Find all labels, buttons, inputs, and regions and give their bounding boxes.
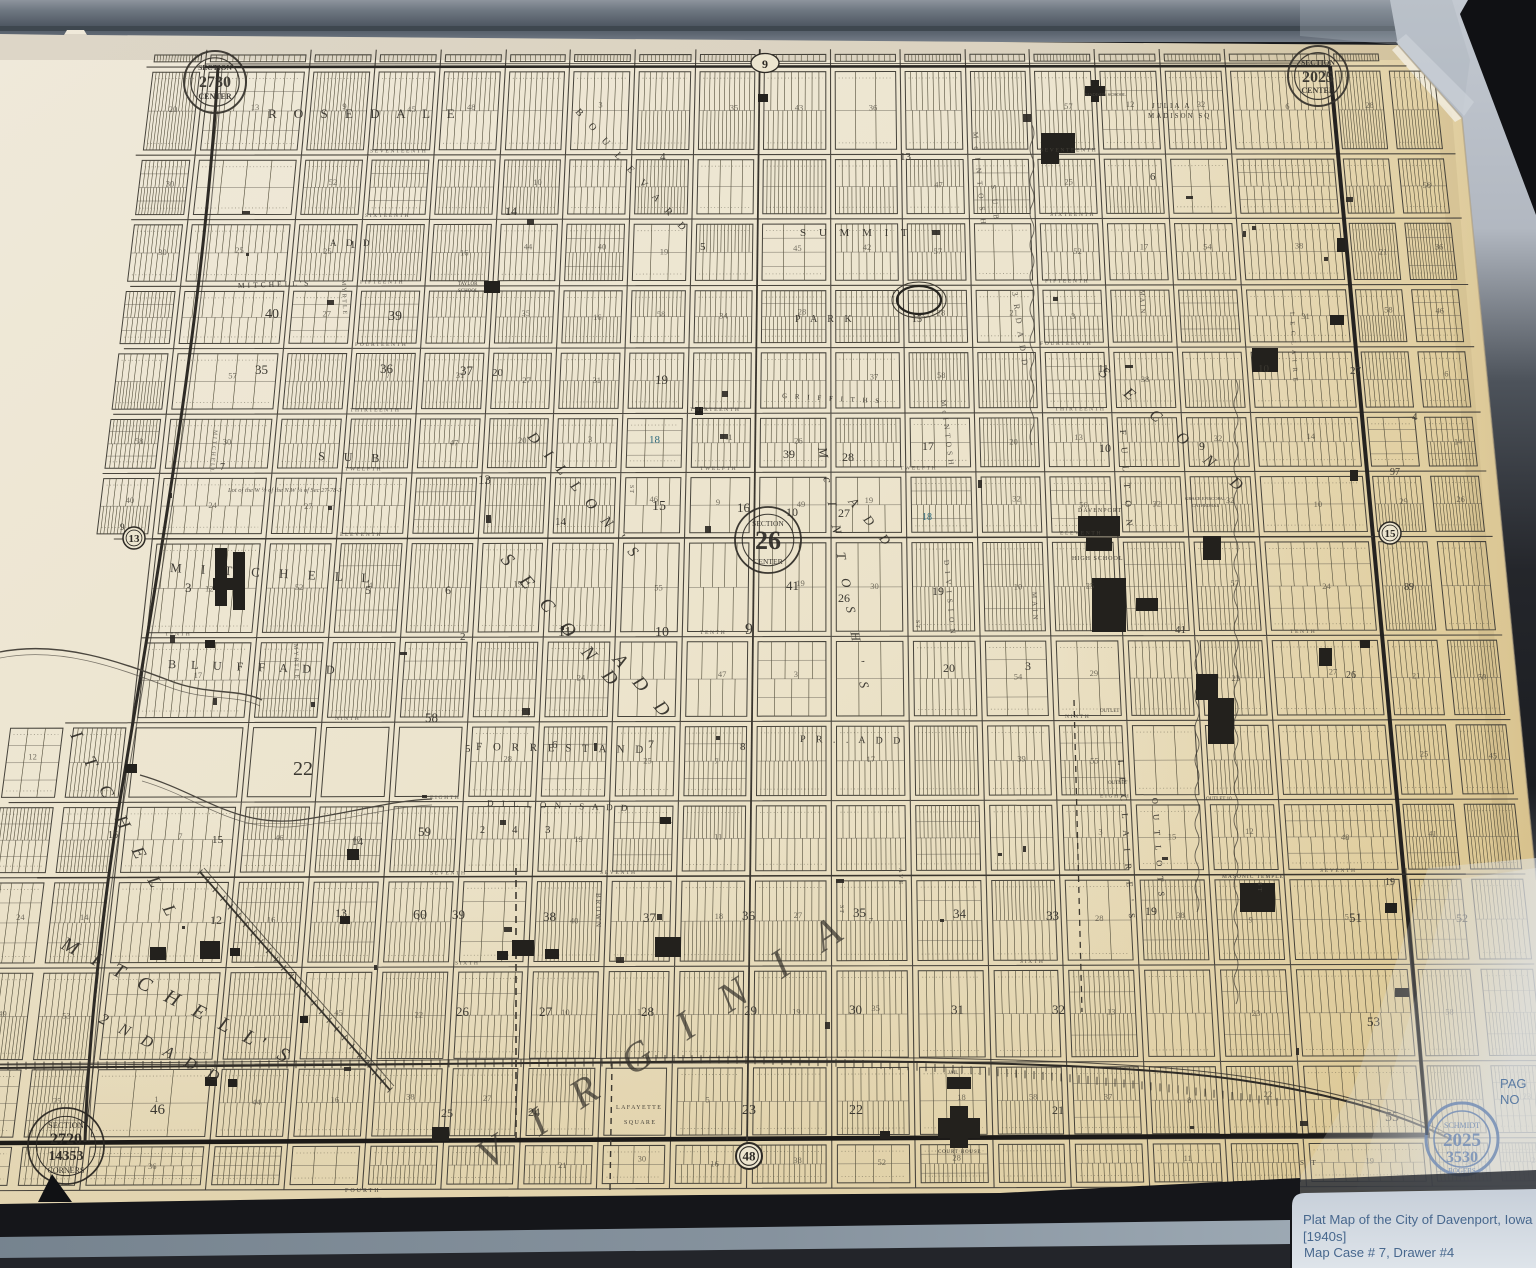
svg-text:36: 36 (148, 1161, 157, 1171)
svg-text:26: 26 (1456, 494, 1465, 504)
svg-text:44: 44 (252, 1097, 261, 1107)
svg-text:7: 7 (178, 831, 182, 841)
svg-text:27: 27 (539, 1004, 553, 1019)
svg-text:OUTLET 10: OUTLET 10 (1206, 797, 1232, 802)
svg-text:89: 89 (1404, 582, 1414, 593)
svg-text:38: 38 (1141, 374, 1150, 384)
svg-text:34: 34 (953, 906, 967, 921)
svg-text:15: 15 (1385, 528, 1397, 540)
svg-text:20: 20 (943, 661, 955, 675)
svg-text:27: 27 (323, 308, 332, 318)
svg-text:52: 52 (878, 1157, 887, 1167)
svg-text:21: 21 (558, 1160, 567, 1170)
svg-text:5: 5 (706, 1095, 710, 1105)
svg-text:15: 15 (912, 314, 922, 325)
svg-text:SEVENTH: SEVENTH (430, 870, 467, 876)
svg-text:TAYLOR: TAYLOR (458, 282, 478, 287)
svg-text:7: 7 (220, 462, 225, 473)
svg-text:15: 15 (1168, 831, 1177, 841)
svg-text:33: 33 (1046, 908, 1059, 923)
svg-text:45: 45 (1489, 750, 1498, 760)
svg-text:9: 9 (745, 621, 753, 638)
svg-text:46: 46 (150, 1102, 166, 1118)
svg-text:12: 12 (205, 583, 214, 593)
svg-text:26: 26 (456, 1004, 470, 1019)
svg-text:JAIL: JAIL (948, 1071, 958, 1076)
svg-text:S U B: S U B (318, 449, 388, 465)
svg-text:54: 54 (1203, 242, 1212, 252)
svg-text:26: 26 (794, 436, 803, 446)
svg-text:29: 29 (1399, 496, 1408, 506)
svg-text:JULIA A: JULIA A (1152, 102, 1191, 110)
svg-text:51: 51 (1349, 910, 1362, 925)
svg-text:30: 30 (158, 247, 167, 257)
svg-text:23: 23 (1252, 1008, 1261, 1018)
svg-text:38: 38 (406, 1091, 415, 1101)
svg-text:FOURTEENTH: FOURTEENTH (1040, 341, 1092, 347)
svg-text:ELEVENTH: ELEVENTH (340, 532, 382, 538)
svg-text:47: 47 (718, 669, 727, 679)
svg-text:SEVENTEENTH: SEVENTEENTH (370, 149, 427, 155)
svg-text:FIFTEENTH: FIFTEENTH (1045, 279, 1089, 285)
svg-text:12: 12 (1126, 99, 1135, 109)
svg-text:18: 18 (957, 1092, 966, 1102)
svg-text:10: 10 (561, 1007, 570, 1017)
svg-text:LAFAYETTE: LAFAYETTE (616, 1105, 662, 1111)
svg-text:SCHOOL: SCHOOL (458, 289, 478, 294)
svg-text:10: 10 (1099, 441, 1111, 455)
svg-text:16: 16 (108, 830, 118, 841)
svg-text:55: 55 (1090, 755, 1099, 765)
svg-text:58: 58 (657, 309, 666, 319)
svg-text:35: 35 (730, 103, 739, 113)
svg-text:27: 27 (1350, 365, 1362, 377)
svg-text:6: 6 (1444, 368, 1448, 378)
svg-text:39: 39 (452, 907, 465, 922)
svg-text:40: 40 (570, 916, 579, 926)
svg-text:Map Case # 7, Drawer #4: Map Case # 7, Drawer #4 (1304, 1245, 1454, 1260)
svg-text:FOURTH: FOURTH (345, 1188, 381, 1194)
svg-text:TWELFTH: TWELFTH (700, 466, 737, 472)
svg-text:SEVENTH: SEVENTH (600, 870, 637, 876)
svg-text:13: 13 (900, 151, 912, 163)
svg-text:21: 21 (1412, 671, 1421, 681)
svg-text:36: 36 (869, 102, 878, 112)
svg-text:FIFTEENTH: FIFTEENTH (360, 280, 404, 286)
svg-text:TWELFTH: TWELFTH (900, 466, 937, 472)
svg-text:58: 58 (1029, 1092, 1038, 1102)
svg-text:MAIN: MAIN (1138, 290, 1146, 316)
svg-text:COURT HOUSE: COURT HOUSE (938, 1150, 981, 1155)
svg-text:22: 22 (415, 1009, 424, 1019)
svg-text:23: 23 (742, 1103, 756, 1118)
svg-text:OUTLET: OUTLET (1100, 709, 1119, 714)
svg-text:19: 19 (796, 578, 805, 588)
svg-text:16: 16 (267, 914, 276, 924)
svg-text:15: 15 (212, 834, 224, 846)
svg-text:10: 10 (655, 625, 669, 640)
svg-text:10: 10 (1314, 499, 1323, 509)
svg-text:46: 46 (1436, 306, 1445, 316)
svg-text:Lot of the W ½ of the N.W ¼ of: Lot of the W ½ of the N.W ¼ of Sec 27-78… (227, 487, 342, 494)
svg-text:24: 24 (16, 912, 25, 922)
svg-text:58: 58 (937, 370, 946, 380)
svg-text:ST: ST (1256, 882, 1263, 894)
svg-text:58: 58 (1423, 180, 1432, 190)
svg-text:31: 31 (593, 375, 602, 385)
svg-text:59: 59 (418, 824, 431, 839)
svg-text:25: 25 (1086, 581, 1095, 591)
svg-text:13: 13 (1074, 432, 1083, 442)
svg-text:20: 20 (169, 104, 178, 114)
svg-text:3530: 3530 (1446, 1149, 1478, 1166)
svg-text:ST: ST (628, 485, 634, 494)
svg-text:30: 30 (849, 1002, 862, 1017)
svg-text:24: 24 (208, 500, 217, 510)
svg-text:16: 16 (593, 312, 602, 322)
svg-text:18: 18 (649, 434, 661, 446)
svg-text:TENTH: TENTH (700, 630, 726, 636)
svg-text:3: 3 (545, 824, 551, 836)
svg-text:52: 52 (295, 582, 304, 592)
svg-text:2025: 2025 (1302, 69, 1334, 86)
svg-text:SIXTEENTH: SIXTEENTH (1050, 212, 1095, 218)
svg-text:18: 18 (922, 512, 932, 523)
svg-text:SCHMIDT: SCHMIDT (1444, 1121, 1480, 1130)
svg-text:14: 14 (555, 516, 567, 528)
svg-text:4: 4 (660, 151, 666, 163)
svg-text:3: 3 (598, 100, 602, 110)
svg-text:1: 1 (637, 1007, 641, 1017)
svg-text:21: 21 (1052, 1103, 1064, 1117)
svg-text:27: 27 (483, 1093, 492, 1103)
svg-text:19: 19 (1385, 877, 1395, 888)
svg-text:THIRTEENTH: THIRTEENTH (690, 407, 740, 413)
svg-text:14: 14 (505, 204, 517, 218)
svg-text:9: 9 (716, 497, 720, 507)
svg-text:17: 17 (867, 754, 876, 764)
svg-text:22: 22 (293, 758, 313, 780)
svg-text:32: 32 (1052, 1002, 1065, 1017)
svg-text:55: 55 (654, 582, 663, 592)
svg-text:P A R K: P A R K (795, 314, 856, 325)
svg-text:27: 27 (1329, 667, 1338, 677)
svg-text:32: 32 (1214, 433, 1223, 443)
svg-text:40: 40 (265, 307, 279, 322)
svg-text:52: 52 (1073, 246, 1082, 256)
svg-text:6: 6 (445, 583, 451, 597)
svg-text:57: 57 (1064, 101, 1073, 111)
svg-text:CENTER: CENTER (1301, 86, 1335, 95)
svg-text:37: 37 (870, 371, 879, 381)
svg-text:11: 11 (714, 832, 722, 842)
svg-text:38: 38 (543, 909, 556, 924)
svg-text:12: 12 (28, 752, 37, 762)
svg-text:50: 50 (1478, 671, 1487, 681)
svg-text:6: 6 (1285, 101, 1289, 111)
svg-text:28: 28 (504, 754, 513, 764)
svg-text:P R . . A D D: P R . . A D D (800, 734, 905, 747)
svg-text:16: 16 (460, 248, 469, 258)
svg-text:MADISON SQ: MADISON SQ (1148, 112, 1211, 120)
svg-text:5: 5 (700, 241, 706, 253)
svg-text:37: 37 (643, 910, 657, 925)
svg-text:24: 24 (577, 672, 586, 682)
svg-text:14: 14 (1454, 437, 1463, 447)
svg-text:17: 17 (417, 912, 426, 922)
svg-text:43: 43 (795, 103, 804, 113)
svg-text:19: 19 (574, 834, 583, 844)
svg-text:40: 40 (598, 241, 607, 251)
svg-text:54: 54 (1014, 671, 1023, 681)
svg-text:19: 19 (932, 584, 944, 598)
svg-text:31: 31 (951, 1002, 964, 1017)
svg-text:MADISON SCHOOL: MADISON SCHOOL (1085, 92, 1126, 97)
svg-text:14: 14 (80, 912, 89, 922)
svg-text:Plat Map of the City of Davenp: Plat Map of the City of Davenport, Iowa (1303, 1212, 1533, 1227)
svg-text:5: 5 (465, 743, 471, 755)
svg-text:NO: NO (1500, 1092, 1520, 1107)
svg-text:57: 57 (228, 370, 237, 380)
svg-text:SQUARE: SQUARE (624, 1120, 656, 1126)
svg-text:SIXTH: SIXTH (1020, 959, 1044, 965)
svg-text:27: 27 (522, 375, 531, 385)
svg-text:97: 97 (1390, 467, 1400, 478)
svg-text:3: 3 (1025, 659, 1031, 673)
svg-text:47: 47 (450, 437, 459, 447)
svg-text:32: 32 (1197, 99, 1206, 109)
svg-text:31: 31 (456, 370, 465, 380)
svg-text:41: 41 (1175, 624, 1186, 636)
svg-text:29: 29 (1090, 668, 1099, 678)
svg-text:53: 53 (62, 1010, 71, 1020)
svg-text:46: 46 (275, 833, 284, 843)
svg-text:A D D: A D D (330, 238, 374, 248)
svg-text:19: 19 (792, 1006, 801, 1016)
svg-text:21: 21 (1379, 246, 1388, 256)
svg-text:13: 13 (251, 102, 259, 112)
svg-text:47: 47 (934, 180, 943, 190)
svg-text:19: 19 (655, 372, 668, 387)
svg-text:49: 49 (0, 1009, 7, 1019)
svg-text:25: 25 (441, 1106, 453, 1120)
svg-text:22: 22 (1264, 1089, 1273, 1099)
svg-text:ST: ST (914, 620, 920, 629)
svg-text:2: 2 (480, 825, 485, 836)
svg-text:28: 28 (1095, 913, 1104, 923)
svg-text:TENTH: TENTH (165, 631, 191, 637)
svg-text:28: 28 (641, 1004, 654, 1019)
svg-text:25: 25 (1420, 749, 1429, 759)
svg-text:MAIN: MAIN (1030, 592, 1040, 623)
svg-text:7: 7 (714, 756, 718, 766)
svg-text:MYRTLE: MYRTLE (340, 280, 347, 316)
svg-text:41: 41 (1428, 829, 1437, 839)
svg-text:CENTER: CENTER (198, 92, 232, 101)
svg-text:THIRTEENTH: THIRTEENTH (350, 407, 400, 413)
svg-text:8: 8 (1187, 1095, 1191, 1105)
svg-text:19: 19 (660, 246, 669, 256)
svg-text:27: 27 (794, 910, 803, 920)
svg-text:R O S E D A L E: R O S E D A L E (268, 106, 462, 121)
svg-text:EIGHTH: EIGHTH (430, 795, 460, 801)
svg-text:17: 17 (1140, 242, 1149, 252)
svg-text:13: 13 (1107, 1006, 1116, 1016)
svg-text:17: 17 (922, 439, 934, 453)
svg-text:30: 30 (638, 1154, 647, 1164)
svg-text:SECTION: SECTION (198, 63, 232, 72)
svg-text:52: 52 (329, 177, 338, 187)
svg-text:S U M M I T: S U M M I T (800, 227, 913, 239)
svg-text:39: 39 (388, 309, 402, 324)
svg-text:9: 9 (762, 57, 768, 71)
svg-text:SECTION: SECTION (1301, 58, 1335, 67)
svg-text:38: 38 (1176, 910, 1185, 920)
svg-text:SEVENTH: SEVENTH (1320, 868, 1357, 874)
svg-text:16: 16 (710, 1158, 719, 1168)
svg-text:48: 48 (467, 102, 476, 112)
svg-text:3: 3 (794, 669, 798, 679)
svg-text:NINTH: NINTH (335, 716, 360, 722)
svg-text:3: 3 (1098, 827, 1102, 837)
svg-text:11: 11 (1184, 1153, 1192, 1163)
svg-text:12: 12 (1245, 826, 1254, 836)
svg-text:41: 41 (724, 432, 733, 442)
svg-text:46: 46 (650, 494, 659, 504)
svg-text:DAVENPORT: DAVENPORT (1078, 508, 1122, 514)
svg-text:SECTION: SECTION (48, 1120, 84, 1130)
svg-text:9: 9 (120, 522, 125, 532)
svg-text:7: 7 (648, 737, 654, 751)
svg-text:13: 13 (129, 533, 141, 545)
svg-text:SEVENTEENTH: SEVENTEENTH (1040, 148, 1097, 154)
svg-text:3: 3 (1071, 311, 1075, 321)
svg-text:48: 48 (743, 1149, 757, 1164)
svg-text:THIRTEENTH: THIRTEENTH (1055, 406, 1105, 412)
svg-text:20: 20 (492, 367, 504, 379)
svg-text:28: 28 (842, 450, 854, 464)
svg-text:36: 36 (1435, 241, 1444, 251)
svg-text:26: 26 (755, 526, 781, 555)
svg-text:14: 14 (1307, 431, 1316, 441)
svg-text:35: 35 (255, 362, 268, 377)
svg-text:2720: 2720 (50, 1131, 82, 1148)
svg-text:GRACE EPISCOPAL: GRACE EPISCOPAL (1185, 496, 1226, 501)
svg-text:ELEVENTH: ELEVENTH (1060, 531, 1102, 537)
svg-text:TWELFTH: TWELFTH (345, 467, 382, 473)
svg-text:8: 8 (740, 741, 746, 753)
svg-text:6: 6 (1150, 171, 1156, 183)
svg-text:27: 27 (304, 501, 313, 511)
svg-text:34: 34 (719, 311, 728, 321)
svg-text:FOURTEENTH: FOURTEENTH (355, 342, 407, 348)
svg-text:TENTH: TENTH (1290, 629, 1316, 635)
svg-text:30: 30 (223, 437, 232, 447)
svg-text:S T: S T (1300, 1159, 1319, 1167)
svg-text:25: 25 (235, 245, 244, 255)
svg-text:10: 10 (1258, 363, 1270, 375)
svg-text:45: 45 (793, 243, 802, 253)
svg-text:SIXTEENTH: SIXTEENTH (365, 213, 410, 219)
svg-text:3: 3 (588, 434, 592, 444)
svg-text:NINTH: NINTH (1065, 714, 1090, 720)
svg-text:MASONIC TEMPLE: MASONIC TEMPLE (1222, 874, 1284, 880)
svg-text:26: 26 (1346, 670, 1356, 681)
svg-text:39: 39 (783, 447, 795, 461)
svg-text:4: 4 (512, 824, 518, 836)
svg-text:25: 25 (53, 1095, 62, 1105)
svg-text:44: 44 (524, 242, 533, 252)
svg-text:58: 58 (135, 436, 144, 446)
svg-text:24: 24 (1322, 581, 1331, 591)
svg-text:7: 7 (386, 370, 390, 380)
svg-text:2025: 2025 (1443, 1130, 1481, 1151)
svg-text:19: 19 (1145, 904, 1157, 918)
svg-text:35: 35 (871, 1003, 880, 1013)
svg-text:28: 28 (1365, 100, 1374, 110)
svg-text:57: 57 (934, 246, 943, 256)
svg-text:13: 13 (478, 472, 491, 487)
svg-text:CORNERS: CORNERS (48, 1166, 85, 1175)
svg-text:49: 49 (797, 499, 806, 509)
svg-text:28: 28 (937, 307, 946, 317)
svg-text:14353: 14353 (49, 1149, 84, 1164)
svg-text:4: 4 (1412, 411, 1418, 423)
svg-text:HIGH SCHOOL: HIGH SCHOOL (1072, 556, 1124, 562)
svg-text:32: 32 (1153, 498, 1162, 508)
svg-text:18: 18 (715, 911, 724, 921)
svg-text:42: 42 (863, 242, 872, 252)
svg-text:SIXTH: SIXTH (455, 960, 479, 966)
svg-text:10: 10 (1014, 582, 1023, 592)
svg-text:AVE: AVE (897, 868, 904, 887)
svg-text:20: 20 (1009, 436, 1018, 446)
svg-text:16: 16 (331, 1095, 340, 1105)
svg-text:38: 38 (793, 1155, 802, 1165)
svg-text:30: 30 (166, 178, 175, 188)
svg-text:58: 58 (1384, 305, 1393, 315)
svg-text:2730: 2730 (199, 74, 231, 91)
svg-text:25: 25 (643, 755, 652, 765)
svg-text:38: 38 (1295, 241, 1304, 251)
svg-text:PAG: PAG (1500, 1076, 1527, 1091)
svg-text:23: 23 (1232, 673, 1241, 683)
svg-text:32: 32 (1226, 495, 1235, 505)
svg-text:2: 2 (460, 631, 466, 643)
svg-text:[1940s]: [1940s] (1303, 1229, 1346, 1244)
svg-text:13: 13 (335, 906, 347, 920)
svg-text:12: 12 (210, 913, 222, 927)
svg-text:39: 39 (1017, 754, 1026, 764)
svg-text:BROWN: BROWN (594, 893, 602, 929)
svg-text:30: 30 (870, 581, 879, 591)
svg-text:CATHEDRAL: CATHEDRAL (1192, 503, 1220, 508)
svg-text:40: 40 (126, 495, 135, 505)
svg-text:32: 32 (1012, 494, 1021, 504)
svg-text:48: 48 (1341, 832, 1350, 842)
svg-text:58: 58 (425, 710, 438, 725)
svg-text:36: 36 (742, 908, 756, 923)
svg-text:1: 1 (154, 1094, 158, 1104)
svg-text:37: 37 (1104, 1091, 1113, 1101)
svg-text:22: 22 (849, 1103, 863, 1118)
svg-text:10: 10 (533, 177, 542, 187)
svg-text:3: 3 (185, 580, 192, 595)
svg-text:31: 31 (1301, 311, 1310, 321)
svg-text:40: 40 (352, 833, 361, 843)
svg-text:25: 25 (1064, 176, 1073, 186)
svg-text:45: 45 (334, 1008, 343, 1018)
